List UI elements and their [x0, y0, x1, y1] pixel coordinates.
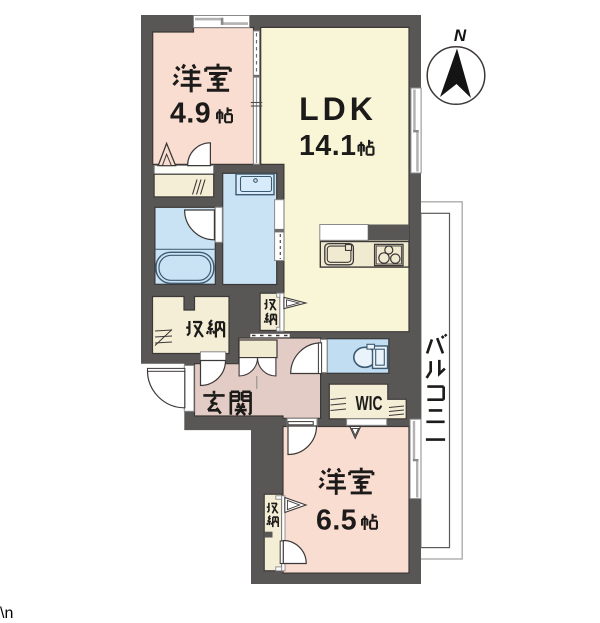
svg-text:6.5: 6.5 [316, 505, 357, 537]
svg-text:4.9: 4.9 [170, 98, 211, 130]
svg-text:WIC: WIC [356, 393, 383, 415]
svg-text:14.1: 14.1 [299, 130, 356, 162]
svg-text:LDK: LDK [299, 91, 377, 127]
svg-text:N: N [454, 26, 467, 45]
